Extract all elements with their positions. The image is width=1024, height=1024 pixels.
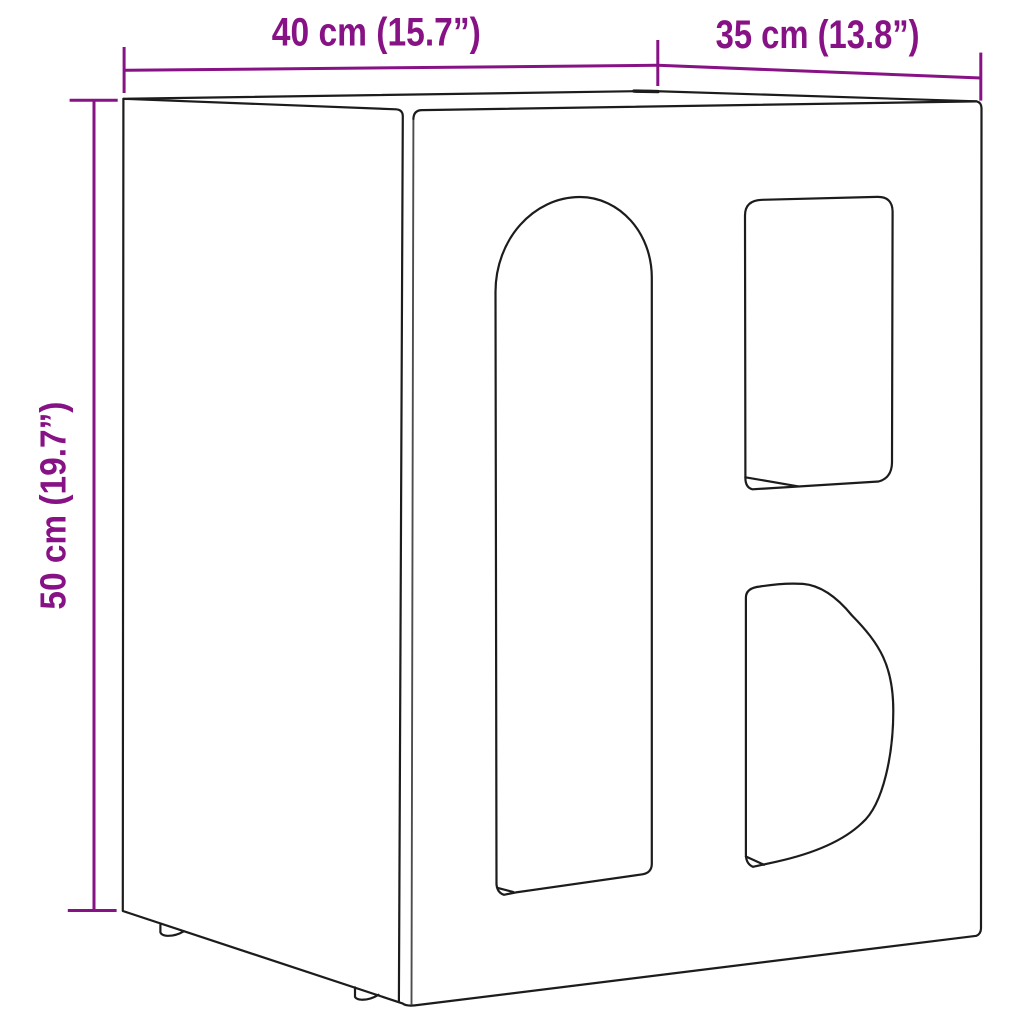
- svg-text:50 cm (19.7”): 50 cm (19.7”): [33, 402, 74, 610]
- svg-text:35 cm (13.8”): 35 cm (13.8”): [716, 13, 920, 57]
- svg-text:40 cm (15.7”): 40 cm (15.7”): [272, 11, 481, 55]
